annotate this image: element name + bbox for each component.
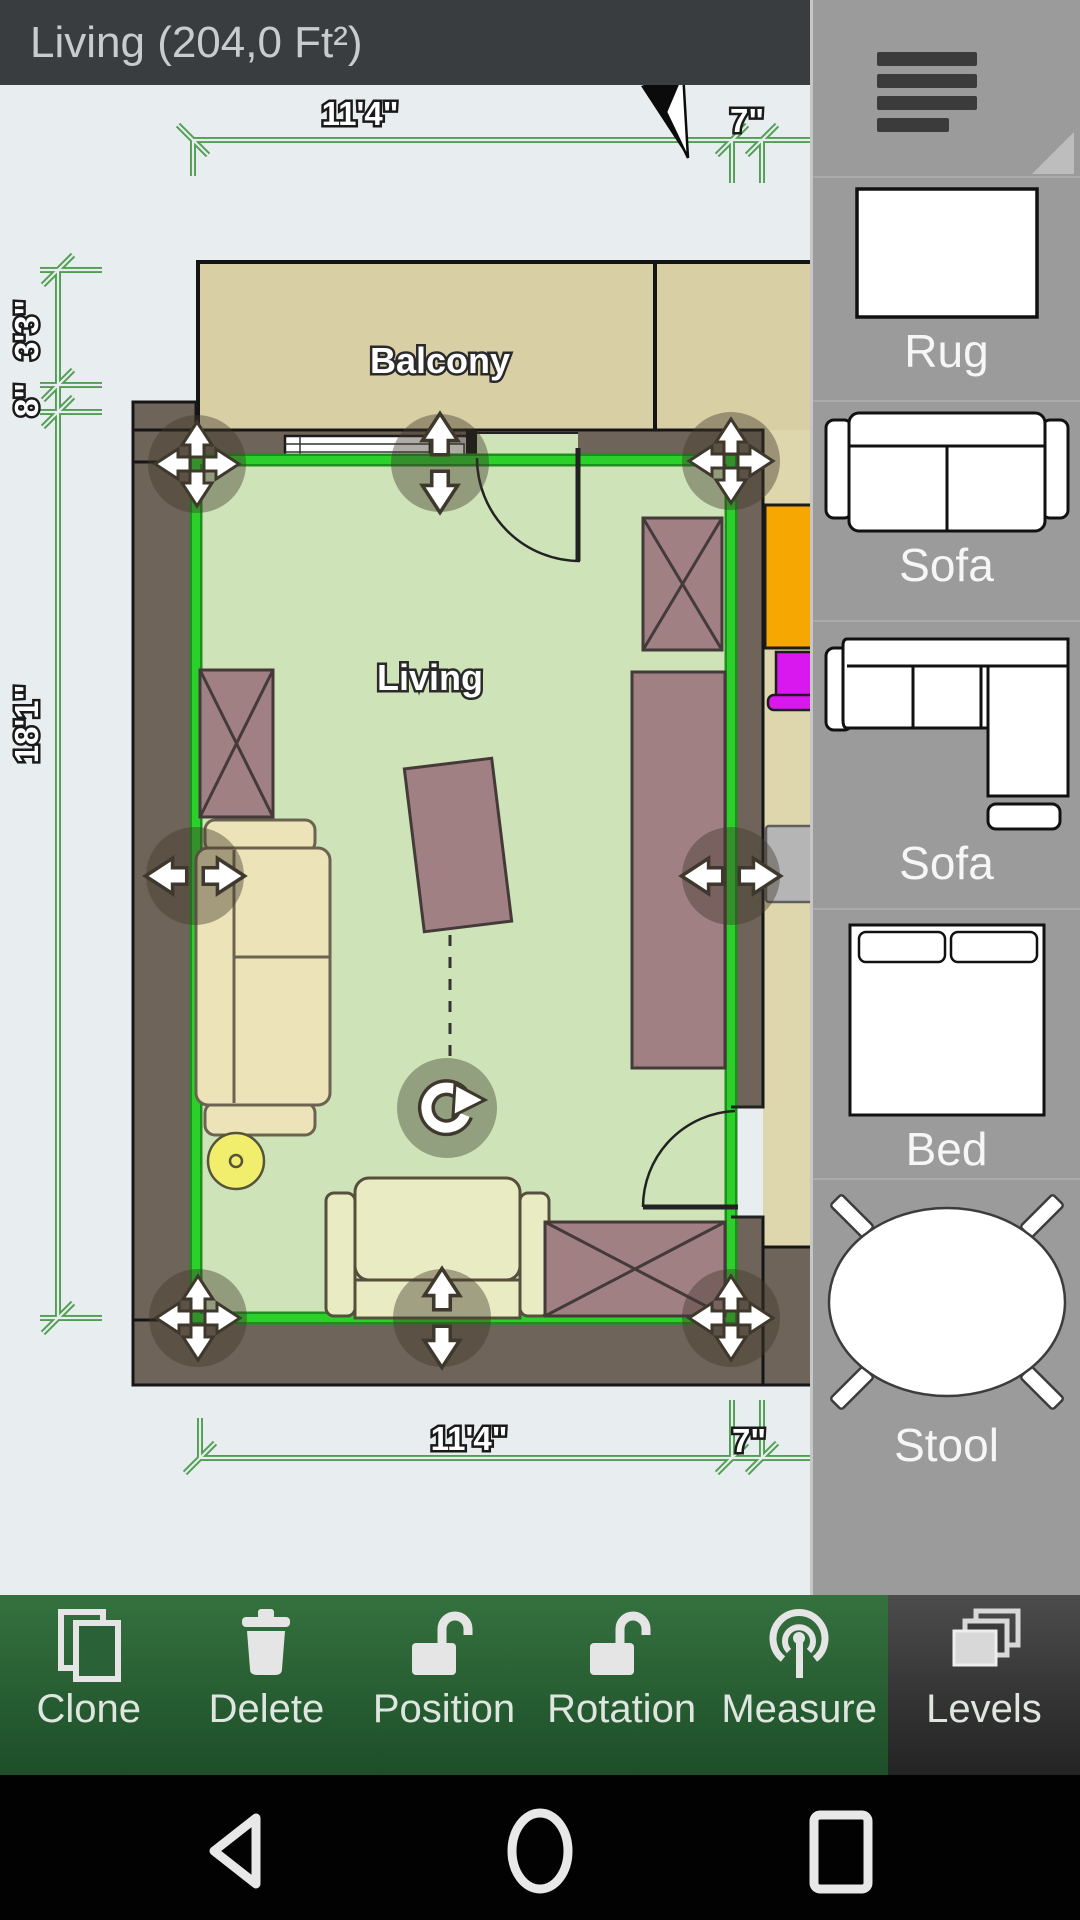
toolbar-label: Rotation bbox=[547, 1687, 696, 1732]
rug-icon bbox=[854, 186, 1040, 320]
position-button[interactable]: Position bbox=[355, 1595, 533, 1775]
cabinet-left[interactable] bbox=[200, 670, 273, 817]
library-item-bed[interactable]: Bed bbox=[813, 922, 1080, 1178]
dim-top-offset: 7" bbox=[730, 102, 764, 139]
trash-icon bbox=[228, 1607, 304, 1683]
page-title: Living (204,0 Ft²) bbox=[30, 0, 363, 85]
dim-bottom-width: 11'4" bbox=[431, 1420, 508, 1457]
divider bbox=[813, 620, 1080, 622]
adjacent-area-top bbox=[655, 262, 817, 435]
measure-button[interactable]: Measure bbox=[710, 1595, 888, 1775]
toolbar-label: Position bbox=[373, 1687, 515, 1732]
chair[interactable] bbox=[768, 652, 816, 710]
resize-corner-icon[interactable] bbox=[1032, 132, 1074, 174]
nav-home-icon[interactable] bbox=[512, 1813, 568, 1889]
stool-yellow[interactable] bbox=[208, 1133, 264, 1189]
clone-button[interactable]: Clone bbox=[0, 1595, 178, 1775]
handle-edge-bottom[interactable] bbox=[393, 1268, 491, 1367]
measure-icon bbox=[761, 1607, 837, 1683]
library-item-label: Rug bbox=[904, 326, 988, 377]
handle-corner-bottomright[interactable] bbox=[682, 1269, 780, 1367]
furniture-sidebar[interactable]: Rug Sofa bbox=[810, 0, 1080, 1595]
handle-edge-top[interactable] bbox=[391, 413, 489, 512]
library-item-stool[interactable]: Stool bbox=[813, 1190, 1080, 1490]
library-item-label: Sofa bbox=[899, 838, 994, 889]
corner-sofa-icon bbox=[823, 636, 1071, 832]
rotation-button[interactable]: Rotation bbox=[533, 1595, 711, 1775]
desk[interactable] bbox=[765, 505, 813, 648]
stool-icon bbox=[819, 1190, 1075, 1414]
divider bbox=[813, 400, 1080, 402]
title-bar: Living (204,0 Ft²) bbox=[0, 0, 810, 85]
handle-corner-bottomleft[interactable] bbox=[149, 1269, 247, 1367]
sidebar-menu[interactable] bbox=[813, 0, 1080, 178]
dim-left-wall: 8" bbox=[8, 383, 45, 417]
toolbar-label: Measure bbox=[721, 1687, 877, 1732]
sofa-icon bbox=[823, 410, 1071, 534]
divider bbox=[813, 908, 1080, 910]
nav-recents-icon[interactable] bbox=[814, 1815, 868, 1889]
handle-edge-left[interactable] bbox=[145, 827, 244, 925]
library-item-sofa-corner[interactable]: Sofa bbox=[813, 636, 1080, 908]
toolbar-label: Levels bbox=[926, 1687, 1042, 1732]
rotation-handle[interactable] bbox=[397, 1058, 497, 1158]
cabinet-right[interactable] bbox=[643, 518, 722, 650]
library-item-label: Bed bbox=[906, 1124, 988, 1175]
balcony-label: Balcony bbox=[370, 340, 510, 381]
library-item-label: Sofa bbox=[899, 540, 994, 591]
nav-back-icon[interactable] bbox=[214, 1818, 256, 1884]
handle-corner-topright[interactable] bbox=[682, 412, 780, 510]
dim-left-height: 18'1" bbox=[8, 685, 45, 764]
clone-icon bbox=[51, 1607, 127, 1683]
room-label: Living bbox=[377, 657, 483, 698]
library-item-sofa[interactable]: Sofa bbox=[813, 410, 1080, 620]
android-nav-bar bbox=[0, 1775, 1080, 1920]
dim-top-width: 11'4" bbox=[322, 95, 399, 132]
levels-icon bbox=[946, 1607, 1022, 1683]
bed-icon bbox=[847, 922, 1047, 1118]
library-item-rug[interactable]: Rug bbox=[813, 186, 1080, 400]
bottom-toolbar: Clone Delete Position R bbox=[0, 1595, 1080, 1775]
handle-corner-topleft[interactable] bbox=[148, 415, 246, 513]
library-item-label: Stool bbox=[894, 1420, 999, 1471]
toolbar-label: Clone bbox=[37, 1687, 142, 1732]
levels-button[interactable]: Levels bbox=[888, 1595, 1080, 1775]
dim-left-balcony: 3'3" bbox=[8, 300, 45, 360]
toolbar-label: Delete bbox=[209, 1687, 325, 1732]
divider bbox=[813, 1178, 1080, 1180]
delete-button[interactable]: Delete bbox=[178, 1595, 356, 1775]
divider bbox=[813, 176, 1080, 178]
table-tilted[interactable] bbox=[404, 758, 511, 932]
handle-edge-right[interactable] bbox=[681, 827, 780, 925]
unlock-icon bbox=[406, 1607, 482, 1683]
unlock-icon bbox=[584, 1607, 660, 1683]
app-screen: Balcony Living bbox=[0, 0, 1080, 1920]
dim-bottom-offset: 7" bbox=[732, 1422, 766, 1459]
